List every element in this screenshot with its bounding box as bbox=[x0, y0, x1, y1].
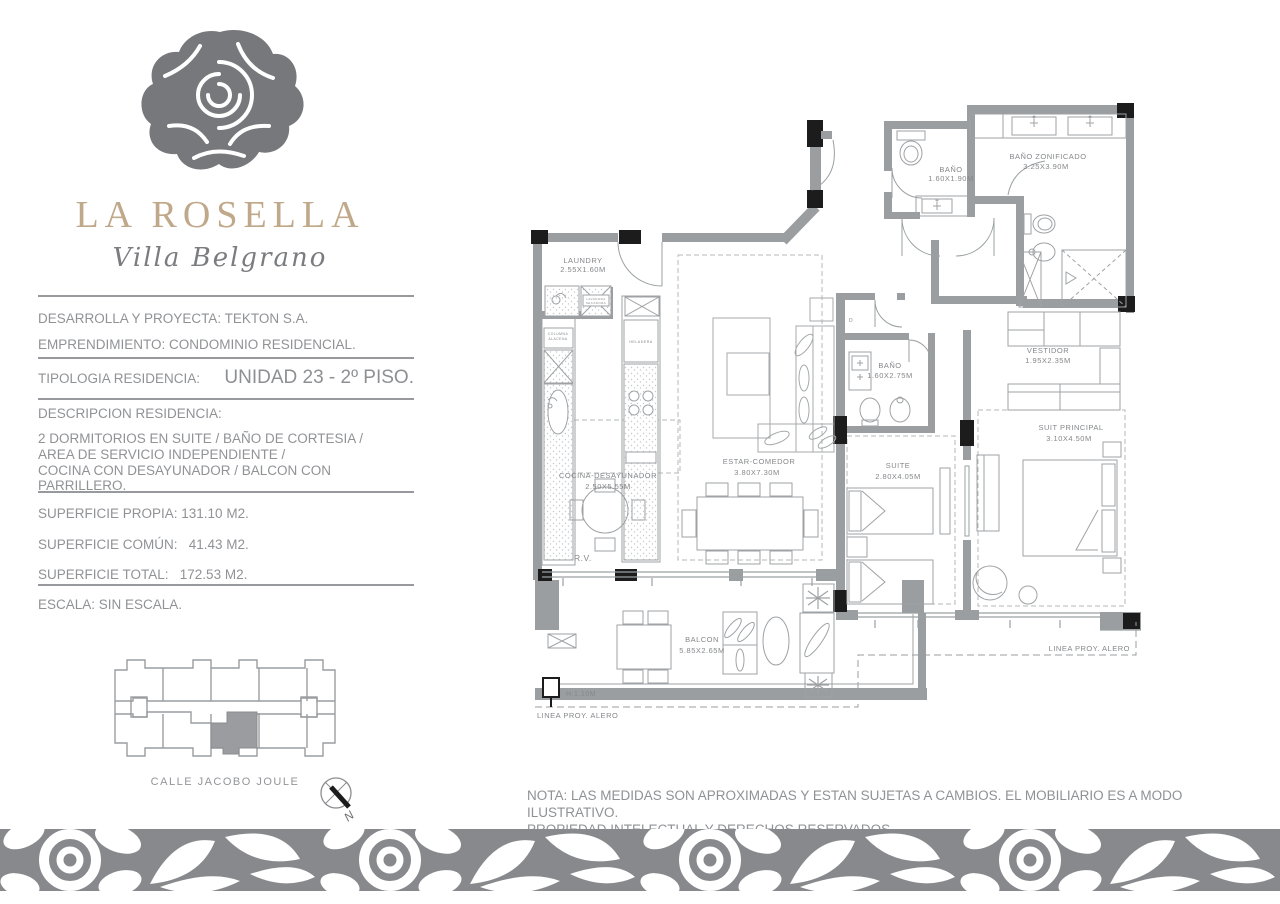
typology-row: TIPOLOGIA RESIDENCIA: UNIDAD 23 - 2º PIS… bbox=[38, 367, 414, 389]
room-dims-balcon: 5.85X2.65M bbox=[679, 646, 724, 655]
door-tag: D bbox=[849, 318, 853, 324]
height-label: H:1.10M bbox=[566, 691, 596, 698]
note-line-1: NOTA: LAS MEDIDAS SON APROXIMADAS Y ESTA… bbox=[527, 787, 1275, 821]
columna-label-1: COLUMNA bbox=[548, 332, 569, 336]
bath-zonificado-fixtures bbox=[970, 114, 1126, 307]
room-label-suite-principal: SUIT PRINCIPAL bbox=[1038, 423, 1103, 432]
surface-common-line: SUPERFICIE COMÚN: 41.43 M2. bbox=[38, 537, 414, 552]
balcony-tap bbox=[543, 678, 559, 697]
eave-label-left: LINEA PROY. ALERO bbox=[537, 711, 618, 720]
room-dims-cocina: 2.50X5.55M bbox=[585, 482, 630, 491]
surface-total-line: SUPERFICIE TOTAL: 172.53 M2. bbox=[38, 567, 414, 582]
kitchen-laundry bbox=[542, 286, 660, 565]
columna-label-2: ALACENA bbox=[548, 337, 568, 341]
description-line: AREA DE SERVICIO INDEPENDIENTE / bbox=[38, 447, 414, 462]
suite-beds bbox=[847, 468, 950, 604]
rose-logo-icon bbox=[134, 26, 306, 184]
room-label-bano-zonificado: BAÑO ZONIFICADO bbox=[1009, 152, 1086, 161]
room-dims-laundry: 2.55X1.60M bbox=[560, 265, 605, 274]
room-dims-bano-cortesia: 1.60X1.90M bbox=[928, 174, 973, 183]
typology-label: TIPOLOGIA RESIDENCIA: bbox=[38, 371, 200, 386]
rv-label: R.V. bbox=[574, 553, 592, 563]
developer-line: DESARROLLA Y PROYECTA: TEKTON S.A. bbox=[38, 311, 414, 326]
unit-highlight bbox=[211, 712, 257, 754]
compass-north-label: N bbox=[341, 808, 357, 825]
room-label-cocina: COCINA-DESAYUNADOR bbox=[559, 471, 657, 480]
surface-own-line: SUPERFICIE PROPIA: 131.10 M2. bbox=[38, 506, 414, 521]
heladera-label: HELADERA bbox=[629, 340, 652, 344]
description-line: 2 DORMITORIOS EN SUITE / BAÑO DE CORTESI… bbox=[38, 431, 414, 446]
divider bbox=[38, 295, 414, 297]
divider bbox=[38, 584, 414, 586]
room-dims-bano-suite: 1.60X2.75M bbox=[867, 371, 912, 380]
room-label-balcon: BALCON bbox=[685, 635, 719, 644]
compass-icon: N bbox=[306, 770, 376, 832]
plan-sheet: LA ROSELLA Villa Belgrano DESARROLLA Y P… bbox=[0, 0, 1280, 904]
keyplan bbox=[105, 648, 345, 774]
scale-line: ESCALA: SIN ESCALA. bbox=[38, 597, 414, 612]
balcony-furniture bbox=[545, 584, 913, 697]
room-label-laundry: LAUNDRY bbox=[563, 256, 602, 265]
room-dims-vestidor: 1.95X2.35M bbox=[1025, 356, 1070, 365]
room-dims-estar: 3.80X7.30M bbox=[734, 468, 779, 477]
divider bbox=[38, 398, 414, 400]
room-dims-suite: 2.80X4.05M bbox=[875, 472, 920, 481]
brand-subtitle: Villa Belgrano bbox=[0, 243, 440, 273]
description-label: DESCRIPCION RESIDENCIA: bbox=[38, 406, 414, 421]
brand-name: LA ROSELLA bbox=[0, 193, 440, 237]
room-label-bano-cortesia: BAÑO bbox=[939, 165, 962, 174]
rose-pattern-band bbox=[0, 829, 1280, 891]
lavadora-label-2: SECADORA bbox=[586, 301, 606, 305]
description-line: COCINA CON DESAYUNADOR / BALCON CON PARR… bbox=[38, 463, 414, 493]
room-label-suite: SUITE bbox=[886, 461, 911, 470]
room-dims-bano-zonificado: 3.25X3.90M bbox=[1023, 162, 1068, 171]
door-arcs bbox=[618, 131, 1045, 536]
project-line: EMPRENDIMIENTO: CONDOMINIO RESIDENCIAL. bbox=[38, 337, 414, 352]
dining-set bbox=[682, 483, 818, 564]
room-label-bano-suite: BAÑO bbox=[878, 361, 901, 370]
diagonal-wall bbox=[783, 207, 816, 241]
room-dims-suite-principal: 3.10X4.50M bbox=[1046, 434, 1091, 443]
divider bbox=[38, 357, 414, 359]
room-label-estar: ESTAR-COMEDOR bbox=[723, 457, 796, 466]
room-label-vestidor: VESTIDOR bbox=[1027, 346, 1069, 355]
living-furniture bbox=[713, 298, 838, 452]
brand-block: LA ROSELLA Villa Belgrano bbox=[0, 26, 440, 273]
typology-value: UNIDAD 23 - 2º PISO. bbox=[224, 367, 414, 389]
principal-furniture bbox=[973, 442, 1121, 604]
divider bbox=[38, 491, 414, 493]
eave-label-right: LINEA PROY. ALERO bbox=[1049, 644, 1130, 653]
floor-plan: LAUNDRY 2.55X1.60M BAÑO 1.60X1.90M BAÑO … bbox=[520, 92, 1148, 740]
